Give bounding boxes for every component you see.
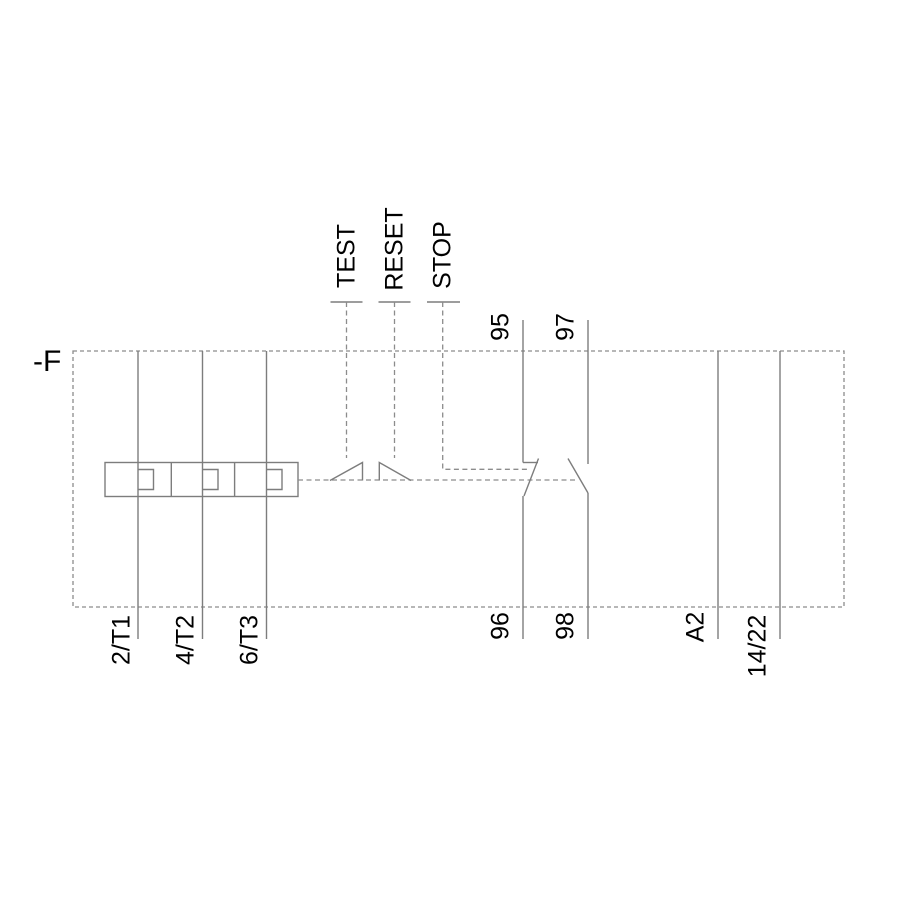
thermal-element-2 bbox=[203, 470, 219, 490]
terminal-98-label: 98 bbox=[553, 612, 578, 640]
test-cam-left bbox=[330, 463, 363, 481]
terminal-95-label: 95 bbox=[489, 313, 514, 341]
overload-relay-schematic: -F TEST RESET STOP 95 97 2/T1 4/T2 6/T3 … bbox=[0, 0, 900, 900]
test-cam-right bbox=[379, 463, 411, 481]
device-boundary bbox=[73, 351, 844, 607]
terminal-A2-label: A2 bbox=[683, 612, 708, 643]
terminal-97-label: 97 bbox=[553, 313, 578, 341]
terminal-14-22-label: 14/22 bbox=[745, 615, 770, 678]
reset-label: RESET bbox=[382, 207, 407, 290]
nc-contact-blade bbox=[524, 459, 539, 497]
terminal-6T3-label: 6/T3 bbox=[238, 615, 263, 665]
no-contact-blade bbox=[568, 459, 588, 494]
thermal-element-1 bbox=[138, 470, 154, 490]
terminal-4T2-label: 4/T2 bbox=[174, 615, 199, 665]
stop-label: STOP bbox=[430, 221, 455, 289]
stop-link-line bbox=[443, 302, 528, 469]
terminal-96-label: 96 bbox=[489, 612, 514, 640]
thermal-overload-box bbox=[105, 463, 298, 497]
thermal-element-3 bbox=[267, 470, 283, 490]
schematic-svg bbox=[0, 0, 900, 900]
test-label: TEST bbox=[334, 224, 359, 288]
device-designation-label: -F bbox=[33, 347, 61, 377]
terminal-2T1-label: 2/T1 bbox=[109, 615, 134, 665]
